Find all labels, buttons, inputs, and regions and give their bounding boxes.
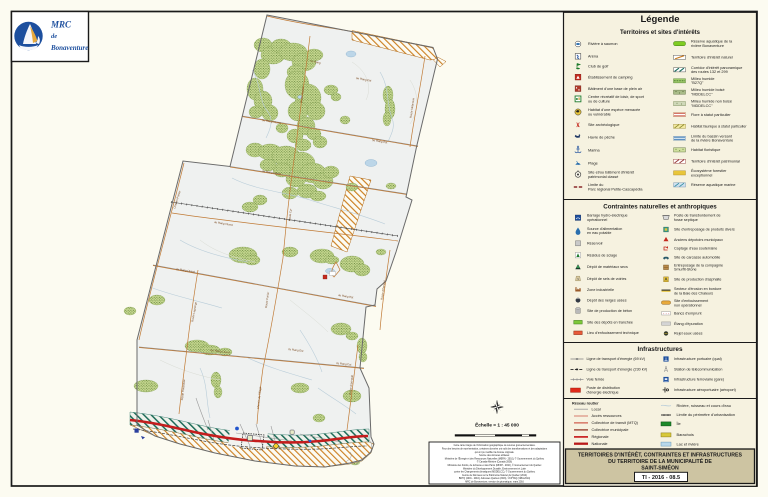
svg-text:Ministère de l'Énergie et des: Ministère de l'Énergie et des Ressources… [445,457,545,460]
svg-text:fosse septique: fosse septique [674,218,698,222]
svg-text:contre les Changements climati: contre les Changements climatiques (MDDE… [454,471,536,474]
svg-text:Bonaventure: Bonaventure [50,44,88,52]
svg-text:qui ont pu modifier la donnée: qui ont pu modifier la donnée originale. [475,451,515,454]
svg-text:Aréna: Aréna [588,55,599,59]
svg-text:Plage: Plage [588,161,598,165]
svg-text:Rivière, ruisseau et cours d'e: Rivière, ruisseau et cours d'eau [677,403,731,408]
svg-text:Accès ressources: Accès ressources [592,414,622,418]
svg-text:"MDDELCC": "MDDELCC" [691,104,713,108]
svg-text:Dépôt de sels de voiries: Dépôt de sels de voiries [587,277,627,281]
svg-text:Dépôt de matériaux secs: Dépôt de matériaux secs [587,265,628,269]
svg-text:TERRITOIRES D'INTÉRÊT, CONTRAI: TERRITOIRES D'INTÉRÊT, CONTRAINTES ET IN… [578,451,743,459]
svg-text:Établissement de camping: Établissement de camping [588,74,633,79]
svg-text:Nationale: Nationale [592,442,608,446]
svg-text:Site des dépôts en tranchée: Site des dépôts en tranchée [587,320,633,324]
svg-text:Site de carcasse automobile: Site de carcasse automobile [674,256,720,260]
svg-text:opérationnel: opérationnel [587,218,607,222]
svg-text:Secteur d'érosion en bordure: Secteur d'érosion en bordure [674,287,721,291]
svg-text:Centre récréatif de loisir, de: Centre récréatif de loisir, de sport [588,95,645,99]
svg-text:Limite du périmètre d'urbanisa: Limite du périmètre d'urbanisation [677,412,736,417]
svg-text:"B27Q": "B27Q" [691,81,704,85]
svg-text:Ministère des Forêts, de la Fa: Ministère des Forêts, de la Faune et des… [448,464,543,467]
svg-text:Flore à statut particulier: Flore à statut particulier [691,113,731,117]
svg-text:Centre de Données sur le Patri: Centre de Données sur le Patrimoine Natu… [462,474,527,477]
svg-text:BDTQ (2001 - 2010), Adresses Q: BDTQ (2001 - 2010), Adresses Québec (201… [459,477,531,480]
svg-text:Site de production de béton: Site de production de béton [587,309,632,313]
svg-text:Infrastructure ferroviaire (ga: Infrastructure ferroviaire (gare) [674,378,724,382]
svg-text:d'énergie électrique: d'énergie électrique [587,391,619,395]
svg-text:DU TERRITOIRE DE LA MUNICIPALI: DU TERRITOIRE DE LA MUNICIPALITÉ DE [608,457,712,465]
svg-text:Résidus de sciage: Résidus de sciage [587,253,617,257]
svg-text:Barachois: Barachois [677,432,694,437]
svg-text:Poste de transbordement de: Poste de transbordement de [674,214,721,218]
svg-text:Entreposage de la compagnie: Entreposage de la compagnie [674,263,723,267]
svg-text:SAINT-SIMÉON: SAINT-SIMÉON [641,463,679,471]
svg-text:en eau potable: en eau potable [587,231,611,235]
svg-text:Rivière à saumon: Rivière à saumon [588,42,618,46]
svg-text:Smurfit-Stone: Smurfit-Stone [674,268,697,272]
svg-text:Station de télécommunication: Station de télécommunication [674,368,722,372]
svg-text:Étang d'épuration: Étang d'épuration [674,321,703,326]
svg-text:Milieu humide non boisé: Milieu humide non boisé [691,100,732,104]
svg-text:Infrastructure portuaire (quai: Infrastructure portuaire (quai) [674,357,722,361]
svg-text:Dépôt des neiges usées: Dépôt des neiges usées [587,298,627,302]
svg-text:de la Baie des Chaleurs: de la Baie des Chaleurs [674,291,713,295]
svg-text:Corridor d'intérêt panoramique: Corridor d'intérêt panoramique [691,66,742,70]
svg-text:Milieu humide: Milieu humide [691,77,714,81]
svg-text:Local: Local [592,407,601,411]
svg-text:Territoire d'intérêt naturel: Territoire d'intérêt naturel [691,56,733,60]
svg-text:S: S [577,277,579,281]
svg-text:Réserve aquatique marine: Réserve aquatique marine [691,183,736,187]
svg-text:ou vulnérable: ou vulnérable [588,112,611,116]
svg-text:Île: Île [676,421,681,426]
svg-text:Zone industrielle: Zone industrielle [587,288,614,292]
svg-text:ou de culture: ou de culture [588,99,610,103]
svg-text:Légende: Légende [640,14,679,25]
svg-text:Marina: Marina [588,149,600,153]
svg-text:© Canada-Ministre (Canada 2006: © Canada-Ministre (Canada 2006) [477,461,512,464]
svg-text:Collectrice de transit (MTQ): Collectrice de transit (MTQ) [592,421,639,425]
svg-text:Infrastructures: Infrastructures [637,346,683,353]
svg-text:Lac et rivière: Lac et rivière [677,441,699,446]
svg-text:Cette carte intègre de l'infor: Cette carte intègre de l'information géo… [454,444,536,447]
svg-text:Site de production d'asphalte: Site de production d'asphalte [674,278,721,282]
svg-text:Milieu humide boisé: Milieu humide boisé [691,88,725,92]
svg-text:Contraintes naturelles et anth: Contraintes naturelles et anthropiques [603,204,717,211]
svg-text:Poste de distribution: Poste de distribution [587,386,620,390]
svg-text:Habitat d'une espèce menacée: Habitat d'une espèce menacée [588,108,640,112]
svg-text:Collectrice municipale: Collectrice municipale [592,428,629,432]
svg-text:exceptionnel: exceptionnel [691,173,712,177]
svg-text:Pour des besoins de représenta: Pour des besoins de représentation, cert… [442,448,548,451]
svg-text:de: de [51,33,57,40]
svg-text:de la rivière Bonaventure: de la rivière Bonaventure [691,139,733,143]
svg-text:MRC de Bonaventure, service de: MRC de Bonaventure, service de géomatiqu… [465,481,524,484]
svg-text:Territoires et sites d'intérêt: Territoires et sites d'intérêts [620,30,701,36]
svg-text:non opérationnel: non opérationnel [674,303,702,307]
svg-text:Voie ferrée: Voie ferrée [587,378,605,382]
svg-text:Territoire d'intérêt patrimoni: Territoire d'intérêt patrimonial [691,160,740,164]
svg-text:Réseau routier: Réseau routier [572,402,599,406]
svg-text:Parc régional Petite-Cascapédi: Parc régional Petite-Cascapédia [588,187,643,191]
svg-text:rivière Bonaventure: rivière Bonaventure [691,44,724,48]
svg-text:Captage d'eau souterraine: Captage d'eau souterraine [674,247,717,251]
svg-text:Ministère du Développement Dur: Ministère du Développement Durable, Envi… [463,467,527,470]
svg-text:Limite du bassin versant: Limite du bassin versant [691,134,733,138]
svg-text:TI - 2016 - 08.5: TI - 2016 - 08.5 [642,475,680,481]
svg-text:Site archéologique: Site archéologique [588,123,619,127]
svg-text:Réserve aquatique de la: Réserve aquatique de la [691,40,733,44]
svg-text:Barrage hydro-électrique: Barrage hydro-électrique [587,214,628,218]
svg-text:Habitat floristique: Habitat floristique [691,148,720,152]
svg-text:Écosystème forestier: Écosystème forestier [691,168,727,173]
svg-text:Source des données utilisées:: Source des données utilisées: [479,454,510,457]
svg-text:Réservoir: Réservoir [587,242,604,246]
svg-text:Anciens dépotoirs municipaux: Anciens dépotoirs municipaux [674,238,723,242]
svg-text:Club de golf: Club de golf [588,65,609,69]
svg-text:Havre de pêche: Havre de pêche [588,136,615,140]
svg-text:"MDDELCC": "MDDELCC" [691,93,713,97]
svg-text:Ligne de transport d'énergie (: Ligne de transport d'énergie (230 kV) [587,368,648,372]
svg-text:Limite du: Limite du [588,183,603,187]
svg-text:MRC: MRC [50,20,72,30]
svg-text:Rejet eaux usées: Rejet eaux usées [674,332,703,336]
svg-text:Lieu d'enfouissement technique: Lieu d'enfouissement technique [587,331,639,335]
svg-text:Site et/ou bâtiment d'intérêt: Site et/ou bâtiment d'intérêt [588,171,635,175]
svg-text:Source d'alimentation: Source d'alimentation [587,227,622,231]
svg-text:Habitat faunique à statut part: Habitat faunique à statut particulier [691,125,747,129]
svg-text:des routes 132 et 299: des routes 132 et 299 [691,70,728,74]
svg-text:Infrastructure aéroportuaire (: Infrastructure aéroportuaire (aéroport) [674,388,736,392]
svg-text:Site d'entreposage de produits: Site d'entreposage de produits divers [674,228,735,232]
svg-text:Bancs d'emprunt: Bancs d'emprunt [674,312,702,316]
svg-text:Bâtiment d'une base de plein a: Bâtiment d'une base de plein air [588,87,643,91]
svg-text:patrimonial classé: patrimonial classé [588,175,618,179]
svg-text:Ligne de transport d'énergie (: Ligne de transport d'énergie (69 kV) [587,357,646,361]
svg-text:Site d'enfouissement: Site d'enfouissement [674,299,708,303]
svg-text:Régionale: Régionale [592,435,609,439]
